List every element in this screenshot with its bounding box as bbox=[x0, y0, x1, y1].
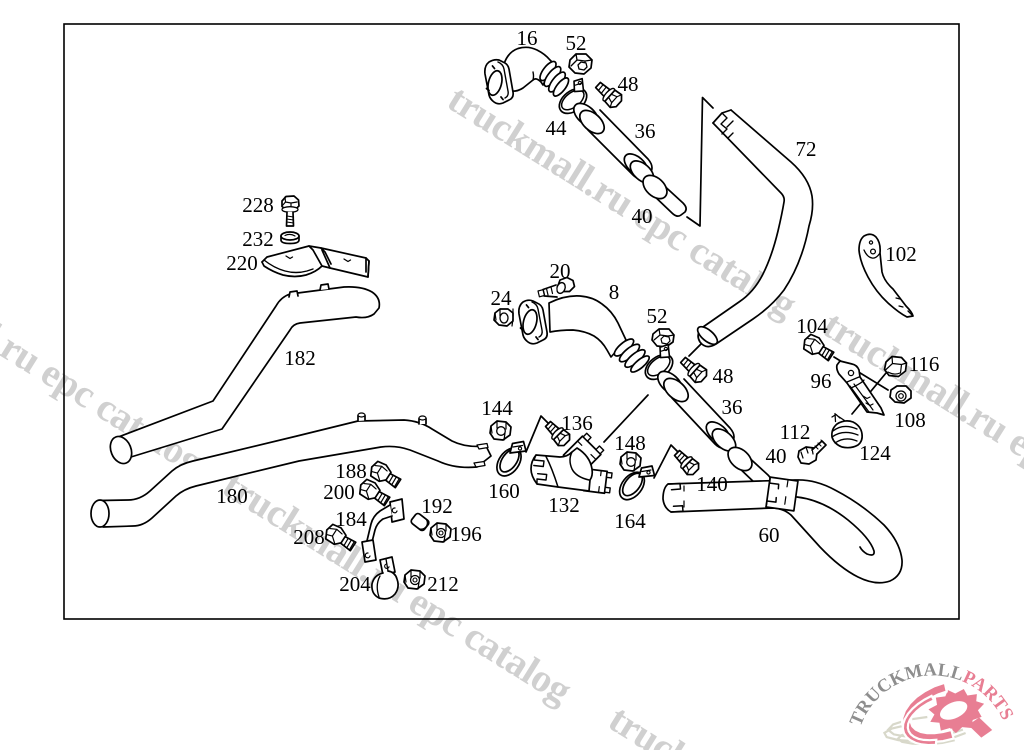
svg-text:48: 48 bbox=[618, 72, 639, 96]
svg-text:208: 208 bbox=[293, 525, 325, 549]
svg-text:52: 52 bbox=[566, 31, 587, 55]
svg-text:16: 16 bbox=[517, 26, 538, 50]
svg-text:164: 164 bbox=[614, 509, 646, 533]
svg-text:102: 102 bbox=[885, 242, 917, 266]
svg-text:144: 144 bbox=[481, 396, 513, 420]
svg-text:8: 8 bbox=[609, 280, 620, 304]
svg-text:108: 108 bbox=[894, 408, 926, 432]
svg-text:148: 148 bbox=[614, 431, 646, 455]
svg-text:96: 96 bbox=[811, 369, 832, 393]
svg-text:192: 192 bbox=[421, 494, 453, 518]
svg-text:200: 200 bbox=[323, 480, 355, 504]
svg-text:204: 204 bbox=[339, 572, 371, 596]
svg-text:228: 228 bbox=[242, 193, 274, 217]
svg-text:180: 180 bbox=[216, 484, 248, 508]
svg-text:124: 124 bbox=[859, 441, 891, 465]
svg-text:44: 44 bbox=[546, 116, 568, 140]
svg-text:220: 220 bbox=[226, 251, 258, 275]
svg-text:24: 24 bbox=[491, 286, 513, 310]
svg-text:140: 140 bbox=[696, 472, 728, 496]
svg-text:112: 112 bbox=[780, 420, 811, 444]
svg-text:104: 104 bbox=[796, 314, 828, 338]
svg-text:40: 40 bbox=[766, 444, 787, 468]
svg-text:52: 52 bbox=[647, 304, 668, 328]
svg-text:36: 36 bbox=[635, 119, 656, 143]
svg-text:48: 48 bbox=[713, 364, 734, 388]
svg-text:truckmall.ru epc catalog: truckmall.ru epc catalog bbox=[0, 233, 212, 484]
svg-text:36: 36 bbox=[722, 395, 743, 419]
svg-text:136: 136 bbox=[561, 411, 593, 435]
svg-text:132: 132 bbox=[548, 493, 580, 517]
svg-text:184: 184 bbox=[335, 507, 367, 531]
svg-text:160: 160 bbox=[488, 479, 520, 503]
svg-text:196: 196 bbox=[450, 522, 482, 546]
svg-text:20: 20 bbox=[550, 259, 571, 283]
svg-text:40: 40 bbox=[632, 204, 653, 228]
svg-text:72: 72 bbox=[796, 137, 817, 161]
svg-text:182: 182 bbox=[284, 346, 316, 370]
svg-text:60: 60 bbox=[759, 523, 780, 547]
svg-text:212: 212 bbox=[427, 572, 459, 596]
svg-text:232: 232 bbox=[242, 227, 274, 251]
svg-text:116: 116 bbox=[909, 352, 940, 376]
